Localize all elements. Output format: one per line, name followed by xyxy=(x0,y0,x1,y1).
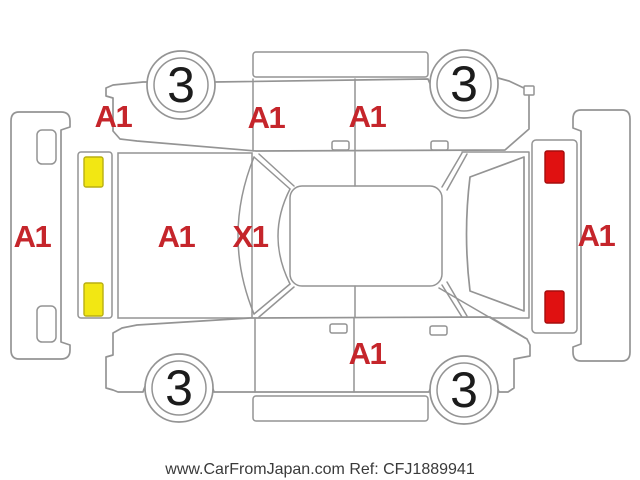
vehicle-condition-diagram: 3 3 3 3 A1 A1 A1 A1 A1 X1 A1 A1 www.CarF… xyxy=(0,0,640,480)
tailgate-window xyxy=(467,157,525,311)
a-pillar-top xyxy=(254,154,294,189)
d-pillar-bottom xyxy=(442,282,467,317)
watermark-text: www.CarFromJapan.com Ref: CFJ1889941 xyxy=(164,461,475,478)
wheel-rear-right-grade: 3 xyxy=(450,362,478,418)
wheel-rear-right: 3 xyxy=(430,356,498,424)
headlight-cutout-bottom xyxy=(37,306,56,342)
damage-label-windshield: X1 xyxy=(233,219,269,254)
wheel-rear-left-grade: 3 xyxy=(165,360,193,416)
roof-panel xyxy=(290,186,442,286)
front-panel-strip xyxy=(78,152,112,318)
door-handle-rear-bottom xyxy=(430,326,447,335)
damage-label-rear-bumper: A1 xyxy=(578,218,616,253)
wheel-front-left: 3 xyxy=(147,51,215,119)
damage-label-left-rear-door: A1 xyxy=(349,99,387,134)
rear-panel-strip xyxy=(532,140,577,333)
damage-label-left-front-fender: A1 xyxy=(95,99,133,134)
damage-label-left-front-door: A1 xyxy=(248,100,286,135)
wheel-front-left-grade: 3 xyxy=(167,57,195,113)
highlight-marker-yellow-bottom xyxy=(84,283,103,316)
car-unfolded-damage-map: 3 3 3 3 A1 A1 A1 A1 A1 X1 A1 A1 www.CarF… xyxy=(0,0,640,480)
d-pillar-top xyxy=(442,153,467,190)
damage-label-front-bumper: A1 xyxy=(14,219,52,254)
headlight-cutout-top xyxy=(37,130,56,164)
door-handle-rear-top xyxy=(431,141,448,150)
damage-label-right-side: A1 xyxy=(349,336,387,371)
damage-label-hood: A1 xyxy=(158,219,196,254)
door-handle-front-top xyxy=(332,141,349,150)
rocker-sill-top xyxy=(253,52,428,77)
wheel-front-right: 3 xyxy=(430,50,498,118)
highlight-marker-yellow-top xyxy=(84,157,103,187)
highlight-marker-red-bottom xyxy=(545,291,564,323)
tail-lamp-side-top xyxy=(524,86,534,95)
highlight-marker-red-top xyxy=(545,151,564,183)
rocker-sill-bottom xyxy=(253,396,428,421)
wheel-rear-left: 3 xyxy=(145,354,213,422)
windshield-inner-arc xyxy=(278,189,290,284)
wheel-front-right-grade: 3 xyxy=(450,56,478,112)
door-handle-front-bottom xyxy=(330,324,347,333)
a-pillar-bottom xyxy=(254,284,294,317)
